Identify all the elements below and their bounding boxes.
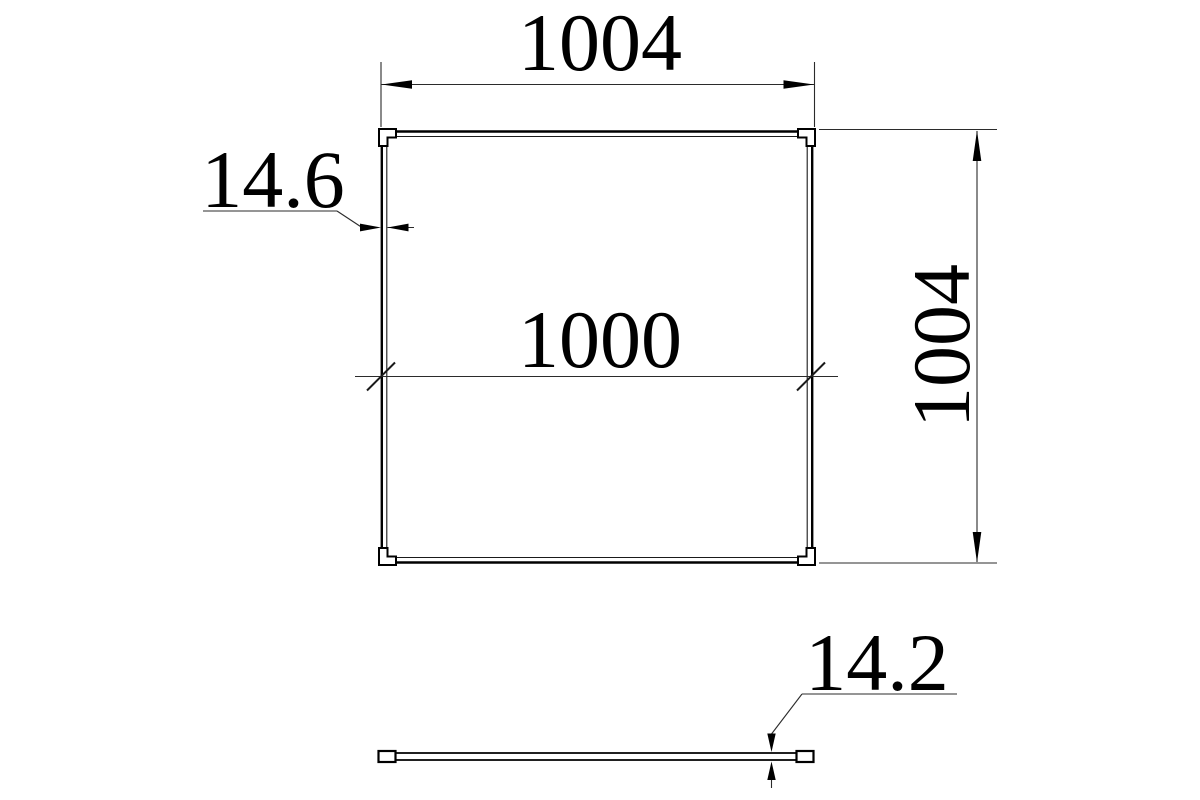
front-corner-top-right	[798, 129, 815, 146]
profile-view	[379, 751, 814, 762]
outer-width-arrow-right-icon	[784, 80, 815, 89]
profile-end-cap-left	[379, 751, 396, 762]
dimension-inner-width: 1000	[355, 294, 838, 391]
outer-height-arrow-bottom-icon	[973, 532, 982, 563]
profile-thickness-arrow-down-icon	[767, 734, 775, 753]
profile-end-cap-right	[797, 751, 814, 762]
outer-width-arrow-left-icon	[382, 80, 413, 89]
front-corner-bottom-right	[798, 548, 815, 565]
outer-width-value: 1004	[518, 0, 682, 88]
technical-drawing: 1004 1004 14.6 1000	[0, 0, 1200, 800]
profile-thickness-arrow-up-icon	[767, 762, 775, 781]
front-corner-top-left	[379, 129, 396, 146]
outer-height-arrow-top-icon	[973, 131, 982, 162]
outer-height-value: 1004	[896, 264, 987, 428]
frame-face-width-arrow-left-icon	[360, 224, 381, 232]
dimension-outer-height: 1004	[819, 130, 997, 564]
inner-width-value: 1000	[518, 294, 682, 385]
front-corner-bottom-left	[379, 548, 396, 565]
frame-face-width-arrow-right-icon	[388, 224, 409, 232]
profile-thickness-leader-line	[772, 694, 803, 734]
dimension-outer-width: 1004	[381, 0, 815, 127]
drawing-canvas: 1004 1004 14.6 1000	[0, 0, 1200, 800]
